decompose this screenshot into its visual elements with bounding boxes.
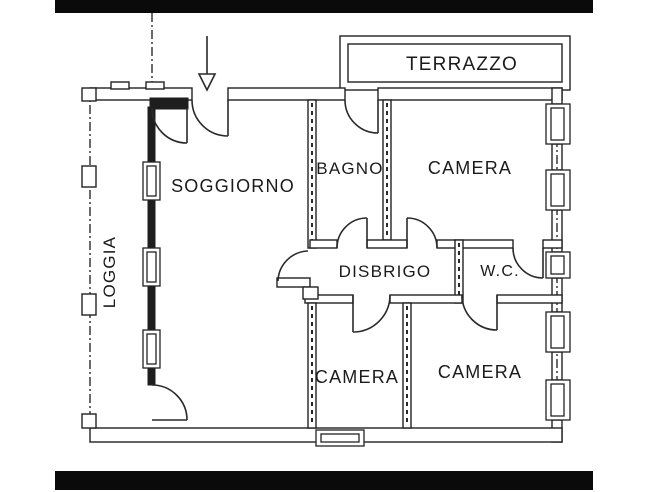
right-wall-seg bbox=[552, 88, 562, 104]
door-soggiorno-loggia-bottom bbox=[152, 385, 187, 420]
door-disbrigo-camera-nord bbox=[407, 218, 437, 248]
floor-plan: TERRAZZO bbox=[0, 0, 648, 492]
door-disbrigo-camera-so bbox=[353, 295, 390, 332]
door-entrance bbox=[192, 100, 228, 136]
window-bottom bbox=[316, 430, 364, 446]
window-right-2 bbox=[546, 170, 570, 210]
loggia-pillar bbox=[82, 414, 96, 428]
disbrigo-south-seg bbox=[497, 295, 562, 303]
loggia-pillar bbox=[82, 166, 96, 187]
top-wall-middle bbox=[228, 88, 345, 100]
disbrigo-north-seg bbox=[310, 240, 337, 248]
disbrigo-north-seg bbox=[367, 240, 407, 248]
loggia-pillar bbox=[82, 88, 96, 101]
entrance-arrow-icon bbox=[199, 36, 215, 90]
room-label-disbrigo: DISBRIGO bbox=[339, 262, 432, 281]
window-right-3 bbox=[546, 252, 570, 278]
room-terrazzo: TERRAZZO bbox=[340, 36, 570, 90]
top-pillar-2 bbox=[146, 82, 164, 89]
door-soggiorno-disbrigo bbox=[278, 251, 308, 281]
room-label-terrazzo: TERRAZZO bbox=[406, 54, 518, 75]
window-right-5 bbox=[546, 380, 570, 420]
window-right-4 bbox=[546, 312, 570, 352]
door-terrazzo-bagno bbox=[345, 100, 378, 133]
loggia-wall-seg bbox=[148, 368, 155, 385]
room-label-bagno: BAGNO bbox=[316, 159, 383, 178]
room-label-camera-sud-ovest: CAMERA bbox=[315, 367, 399, 387]
disbrigo-south-seg bbox=[390, 295, 462, 303]
door-disbrigo-bagno bbox=[337, 218, 367, 248]
soggiorno-step bbox=[303, 287, 318, 299]
soggiorno-jamb bbox=[277, 278, 310, 287]
window-loggia-3 bbox=[143, 330, 160, 368]
loggia-wall-seg bbox=[148, 200, 155, 248]
scan-bar-bottom bbox=[55, 471, 593, 490]
loggia-wall-seg bbox=[148, 286, 155, 330]
room-label-camera-sud-est: CAMERA bbox=[438, 362, 522, 382]
scanned-floorplan-page: TERRAZZO bbox=[0, 0, 648, 492]
disbrigo-north-seg bbox=[543, 240, 562, 248]
scan-bar-top bbox=[55, 0, 593, 13]
disbrigo-north-seg bbox=[437, 240, 513, 248]
loggia-pillar bbox=[82, 294, 96, 315]
room-label-soggiorno: SOGGIORNO bbox=[171, 176, 295, 196]
window-loggia-2 bbox=[143, 248, 160, 286]
door-soggiorno-loggia-top bbox=[152, 108, 187, 143]
room-label-loggia: LOGGIA bbox=[100, 236, 119, 308]
window-right-1 bbox=[546, 104, 570, 144]
top-wall-east bbox=[378, 88, 562, 100]
room-label-wc: W.C. bbox=[480, 263, 519, 280]
top-pillar-1 bbox=[111, 82, 129, 89]
door-disbrigo-camera-se bbox=[462, 295, 497, 330]
window-loggia-1 bbox=[143, 162, 160, 200]
room-label-camera-nord: CAMERA bbox=[428, 158, 512, 178]
loggia-wall-seg bbox=[148, 107, 155, 162]
entrance-jamb bbox=[150, 98, 188, 109]
